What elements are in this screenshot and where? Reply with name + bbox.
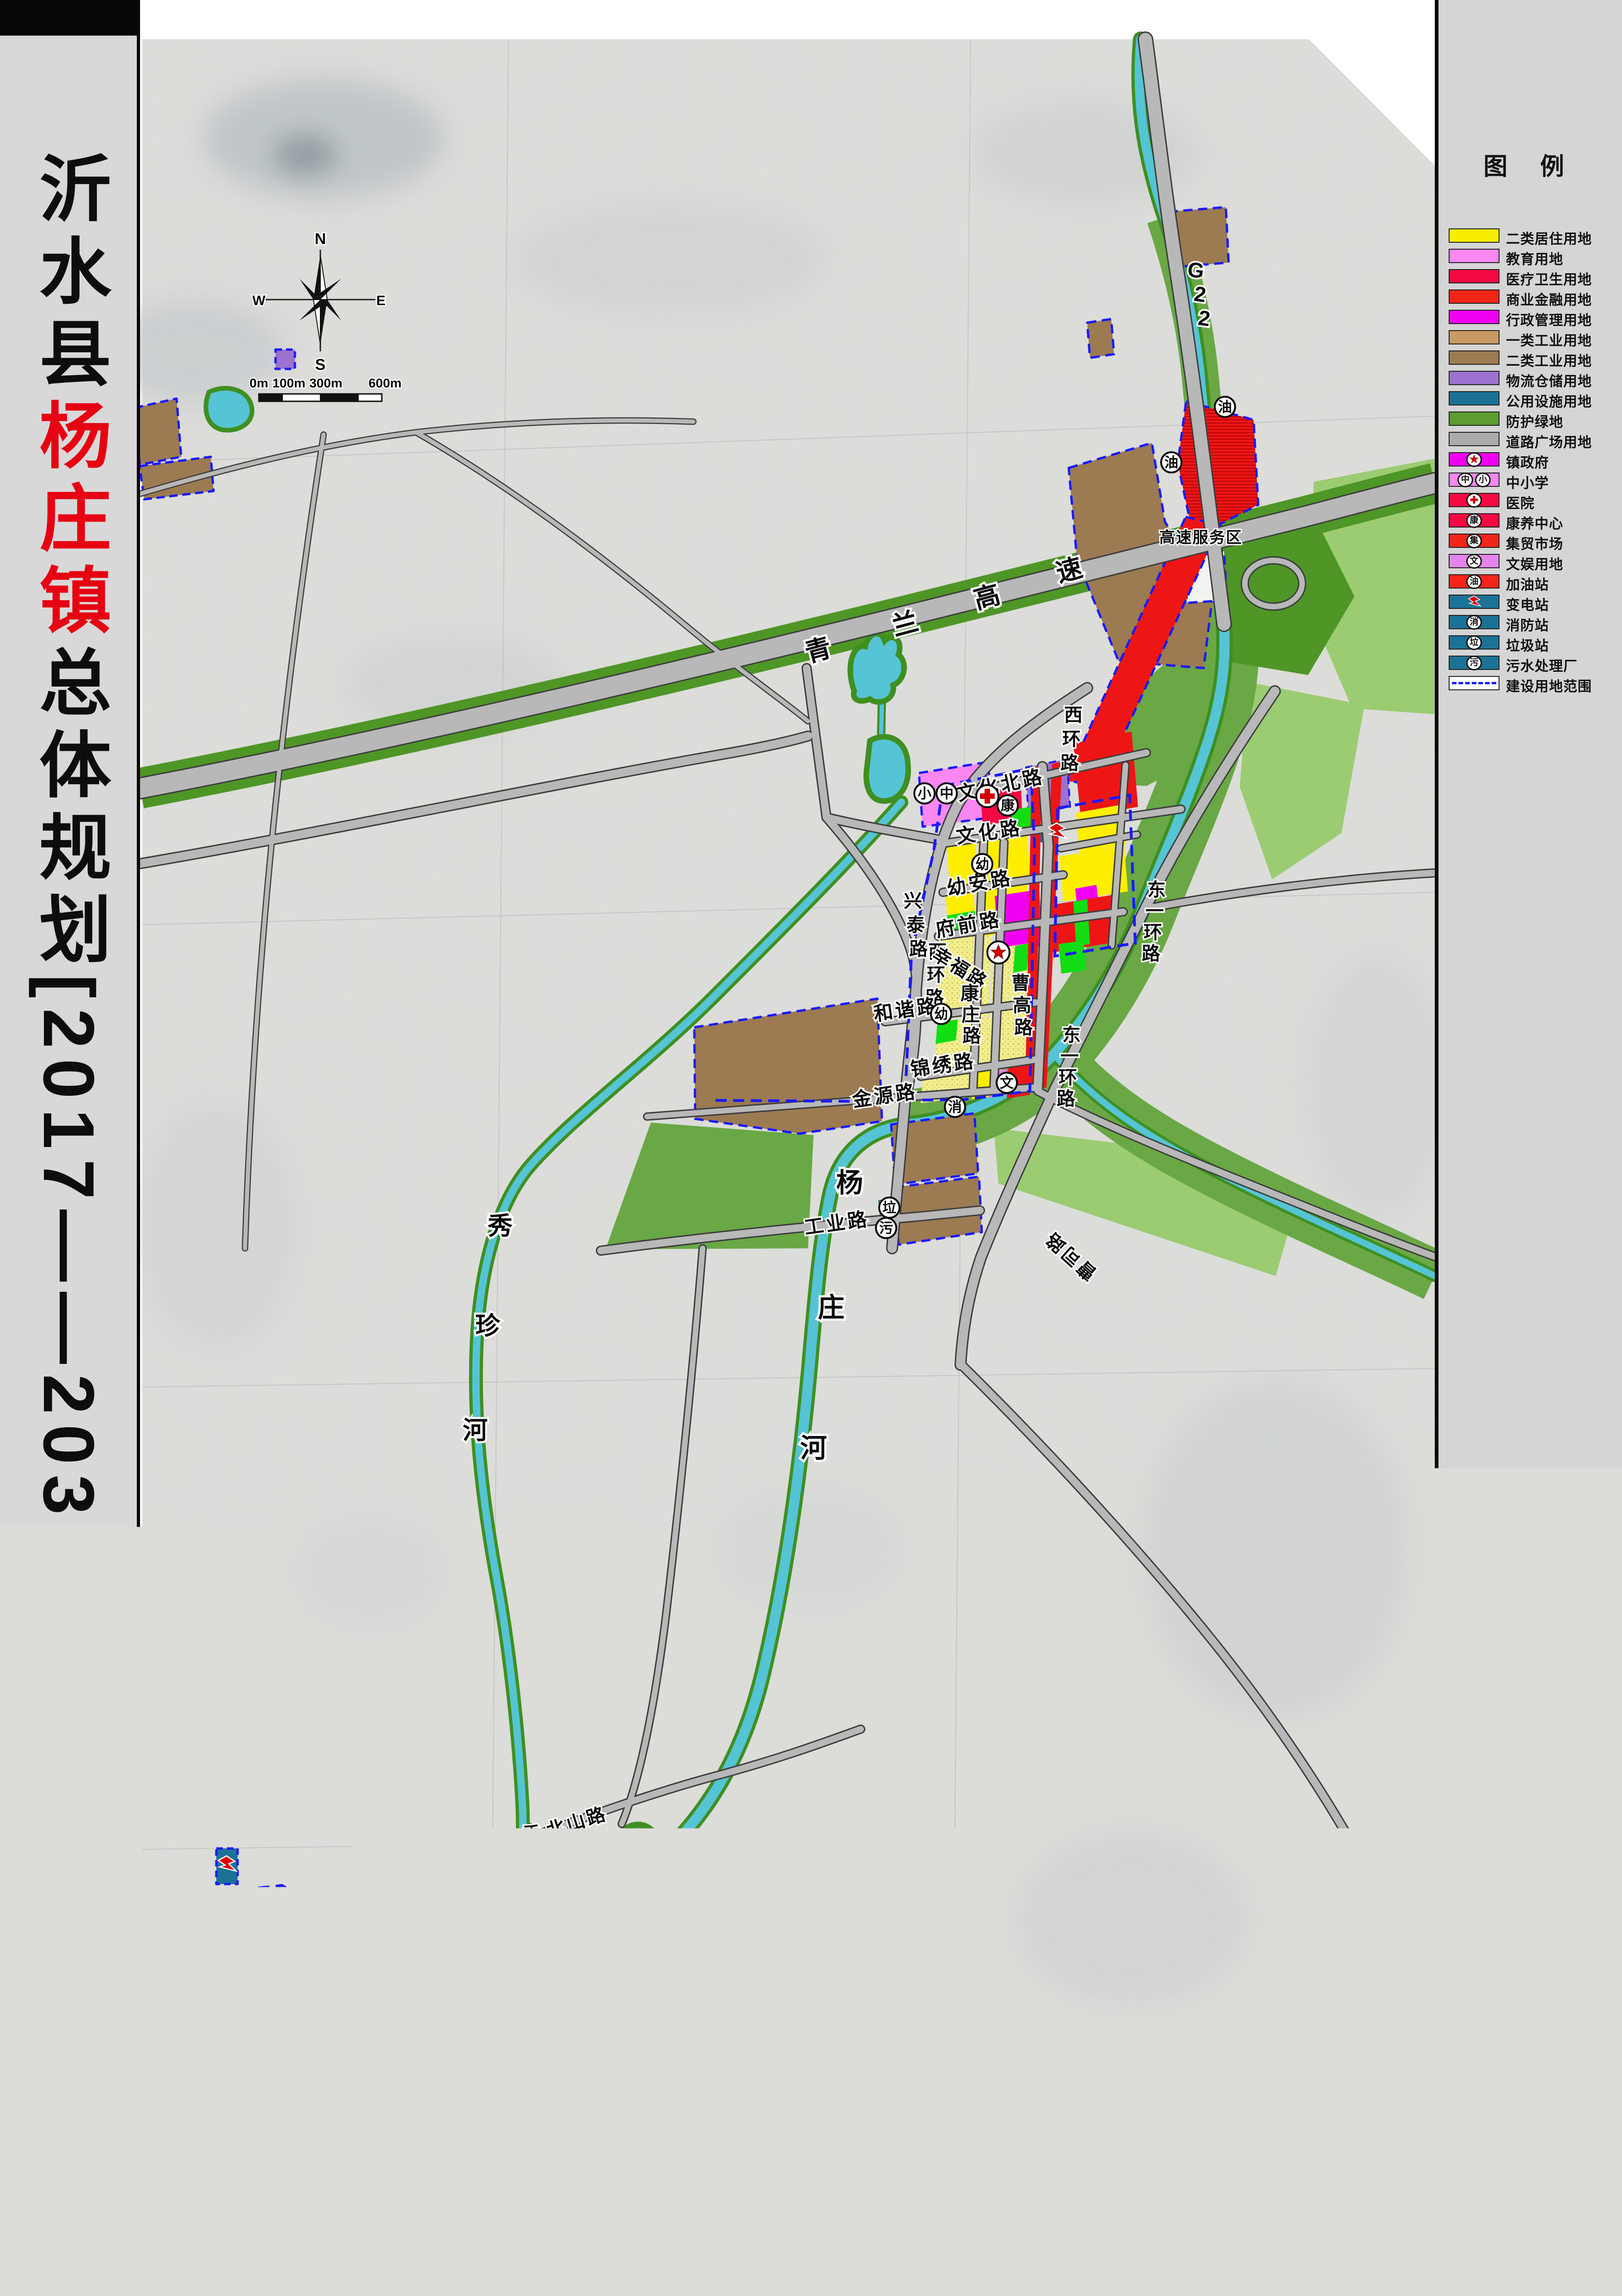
legend-label: 防护绿地 [1506, 411, 1563, 431]
legend-label: 医疗卫生用地 [1506, 268, 1592, 289]
svg-text:中: 中 [940, 786, 954, 802]
map-symbol-中: 中 [936, 783, 957, 804]
legend-item-16: 文文娱用地 [1438, 551, 1622, 571]
river-label: 珍 [475, 1312, 501, 1340]
road-label: 环 [1062, 729, 1081, 749]
legend-item-4: 行政管理用地 [1438, 307, 1622, 327]
svg-text:文: 文 [1000, 1075, 1014, 1091]
map-symbol-消: 消 [945, 1097, 965, 1117]
road-label: 路 [525, 1868, 544, 1889]
svg-text:幼: 幼 [312, 1914, 326, 1929]
map-symbol-幼: 幼 [972, 854, 992, 874]
river-label: 杨 [836, 1168, 863, 1198]
legend-swatch [1449, 269, 1500, 283]
legend-swatch: 消 [1449, 615, 1500, 629]
compass-s-label: S [315, 356, 326, 374]
legend-label: 道路广场用地 [1506, 431, 1592, 451]
road-label: 路 [232, 1962, 251, 1982]
river-label: 河 [463, 1417, 488, 1444]
legend-item-14: 康康养中心 [1438, 510, 1622, 531]
road-label: 钟 [233, 1917, 251, 1938]
legend-label: 变电站 [1506, 594, 1549, 614]
road-label: 东 [1062, 1025, 1081, 1045]
legend-item-21: 污污水处理厂 [1438, 653, 1622, 673]
map-symbol-集: 集 [481, 1969, 501, 1989]
river-label: 秀 [487, 1212, 513, 1240]
government-star-icon [987, 941, 1010, 964]
title-town: 杨庄镇 [28, 398, 109, 645]
legend-title: 图 例 [1438, 147, 1622, 182]
road-label: 路 [1057, 1089, 1076, 1109]
legend-swatch [1449, 595, 1500, 609]
map-symbol-康: 康 [998, 795, 1018, 816]
legend-label: 建设用地范围 [1506, 675, 1592, 695]
legend-item-22: 建设用地范围 [1438, 673, 1622, 694]
legend-item-8: 公用设施用地 [1438, 388, 1622, 409]
road-label: 东 [1147, 880, 1166, 900]
road-label: 兴 [904, 891, 922, 911]
legend-item-20: 垃垃圾站 [1438, 632, 1622, 653]
scale-label: 0m [250, 376, 268, 390]
map-symbol-文: 文 [997, 1073, 1017, 1093]
legend-glyph-icon: 康 [1466, 513, 1482, 528]
map-symbol-幼: 幼 [309, 1910, 329, 1931]
road-label: 路 [1014, 1018, 1033, 1038]
legend-glyph-icon: 文 [1466, 554, 1482, 569]
road-label: 高速服务区 [1159, 529, 1243, 546]
compass-e-label: E [376, 293, 386, 308]
watermark-icon: ✓ [1606, 2278, 1620, 2291]
hospital-cross-icon: ✚ [1466, 493, 1482, 508]
svg-text:油: 油 [1218, 400, 1232, 415]
road-label: 一 [1060, 1046, 1079, 1067]
legend-swatch: 油 [1449, 574, 1500, 589]
legend-glyph-icon: 消 [1466, 615, 1482, 630]
planning-sheet: { "page": { "title_prefix": "沂水县", "titl… [0, 0, 1622, 2294]
page-title: 沂水县杨庄镇总体规划[2017——2035年] [0, 151, 137, 2294]
legend-swatch: 污 [1449, 656, 1500, 670]
legend-item-19: 消消防站 [1438, 612, 1622, 632]
compass-n-label: N [315, 230, 326, 248]
svg-text:幼: 幼 [975, 857, 989, 872]
map-symbol-小: 小 [340, 1934, 361, 1955]
legend-label: 教育用地 [1506, 248, 1563, 268]
legend-label: 镇政府 [1506, 451, 1549, 472]
boundary-dash-icon [1452, 682, 1496, 684]
legend-item-13: ✚医院 [1438, 490, 1622, 510]
road-label: 康 [961, 983, 979, 1004]
legend-item-1: 教育用地 [1438, 246, 1622, 266]
map-symbol-中: 中 [365, 1941, 386, 1961]
svg-text:小: 小 [918, 786, 931, 802]
road-label: 秀 [522, 1824, 541, 1844]
panel-divider-right [1435, 0, 1438, 2294]
legend-item-5: 一类工业用地 [1438, 327, 1622, 348]
road-label: G [1186, 257, 1206, 283]
legend-glyph-icon: 污 [1466, 656, 1482, 670]
legend-label: 污水处理厂 [1506, 655, 1578, 675]
legend-swatch [1449, 676, 1500, 690]
legend-swatch: ✚ [1449, 493, 1500, 507]
scale-label: 300m [309, 376, 343, 390]
legend-item-9: 防护绿地 [1438, 409, 1622, 429]
legend-item-10: 道路广场用地 [1438, 429, 1622, 449]
road-label: 珍 [524, 1846, 543, 1866]
title-panel: 沂水县杨庄镇总体规划[2017——2035年] [0, 36, 137, 2294]
svg-text:油: 油 [1164, 455, 1178, 471]
legend-swatch [1449, 411, 1500, 426]
legend-item-12: 中小中小学 [1438, 470, 1622, 490]
scale-label: 100m [272, 376, 306, 390]
road-label: 灵 [233, 1940, 251, 1960]
legend-swatch [1449, 310, 1500, 324]
svg-text:污: 污 [879, 1221, 893, 1236]
legend-item-17: 油加油站 [1438, 571, 1622, 592]
title-suffix: 总体规划[2017——2035年] [28, 645, 109, 1692]
legend-swatch: 康 [1449, 513, 1500, 528]
legend-item-2: 医疗卫生用地 [1438, 266, 1622, 287]
river-label: 庄 [818, 1293, 845, 1323]
legend-glyph-icon: 垃 [1466, 635, 1482, 650]
road-label: 路 [909, 939, 928, 959]
legend-swatch: 垃 [1449, 635, 1500, 650]
legend-label: 商业金融用地 [1506, 289, 1592, 309]
page-number: 17 [1541, 2155, 1589, 2199]
svg-text:垃: 垃 [882, 1200, 896, 1216]
legend-label: 二类居住用地 [1506, 227, 1592, 248]
legend-swatch [1449, 249, 1500, 263]
legend-label: 中小学 [1506, 472, 1549, 492]
legend-glyph-icon: 小 [1475, 473, 1491, 487]
svg-text:幼: 幼 [934, 1007, 948, 1022]
legend-glyph-icon: 集 [1466, 534, 1482, 548]
road-label: 路 [1142, 944, 1161, 964]
legend-glyph-icon: 中 [1457, 473, 1473, 487]
legend-swatch [1449, 330, 1500, 344]
title-county: 沂水县 [28, 151, 109, 398]
legend-list: 二类居住用地教育用地医疗卫生用地商业金融用地行政管理用地一类工业用地二类工业用地… [1438, 226, 1622, 694]
legend-label: 文娱用地 [1506, 553, 1563, 573]
map-symbol-油: 油 [1161, 452, 1181, 473]
road-label: 西 [1064, 705, 1083, 725]
road-label: 庄 [961, 1005, 980, 1025]
road-label: 环 [1059, 1068, 1077, 1088]
legend-item-7: 物流仓储用地 [1438, 368, 1622, 388]
svg-text:小: 小 [343, 1938, 357, 1953]
road-label: 高 [1013, 995, 1031, 1016]
svg-text:康: 康 [1001, 798, 1015, 814]
bolt-icon [1466, 595, 1482, 608]
map-area: 青兰高速G22西环路西环路东一环路东一环路文化北路文化路幼安路府前路幸福路康庄路… [140, 0, 1435, 2294]
legend-item-3: 商业金融用地 [1438, 287, 1622, 307]
legend-glyph-icon: 油 [1466, 574, 1482, 589]
legend-swatch [1449, 350, 1500, 365]
road-label: 曹 [1011, 973, 1030, 994]
legend-label: 康养中心 [1506, 512, 1563, 533]
legend-label: 垃圾站 [1506, 634, 1549, 655]
road-label: 路 [962, 1026, 981, 1046]
legend-label: 医院 [1506, 492, 1535, 512]
legend-swatch: 集 [1449, 534, 1500, 548]
legend-item-18: 变电站 [1438, 592, 1622, 612]
legend-swatch [1449, 391, 1500, 405]
government-star-icon: ★ [1466, 452, 1482, 467]
panel-divider-left [137, 0, 140, 2294]
legend-label: 物流仓储用地 [1506, 370, 1592, 390]
legend-item-15: 集集贸市场 [1438, 531, 1622, 551]
road-label: 一 [1145, 901, 1164, 921]
road-label: 路 [1060, 753, 1079, 774]
svg-text:集: 集 [484, 1972, 498, 1987]
compass-w-label: W [252, 293, 266, 308]
legend-label: 集贸市场 [1506, 533, 1563, 553]
sheet-title: 远期规划图 [1537, 1885, 1602, 2130]
legend-swatch: 中小 [1449, 473, 1500, 487]
legend-label: 行政管理用地 [1506, 309, 1592, 329]
legend-label: 公用设施用地 [1506, 390, 1592, 411]
legend-item-0: 二类居住用地 [1438, 226, 1622, 246]
river-label: 河 [800, 1433, 827, 1463]
legend-bottom-bar: ✓ [1438, 2218, 1622, 2294]
map-symbol-垃: 垃 [879, 1197, 900, 1218]
road-label: 泰 [906, 915, 925, 935]
scale-label: 600m [368, 376, 402, 390]
scale-bar [259, 394, 382, 401]
legend-swatch [1449, 432, 1500, 446]
legend-swatch [1449, 289, 1500, 304]
map-symbol-油: 油 [1215, 397, 1235, 417]
planning-map: 青兰高速G22西环路西环路东一环路东一环路文化北路文化路幼安路府前路幸福路康庄路… [140, 0, 1435, 2294]
legend-label: 消防站 [1506, 614, 1549, 634]
legend-swatch [1449, 228, 1500, 243]
map-symbol-小: 小 [914, 783, 935, 804]
hospital-cross-icon [976, 785, 998, 807]
legend-panel: 图 例 二类居住用地教育用地医疗卫生用地商业金融用地行政管理用地一类工业用地二类… [1438, 0, 1622, 2294]
svg-text:消: 消 [948, 1100, 962, 1115]
legend-swatch: 文 [1449, 554, 1500, 568]
map-symbol-幼: 幼 [931, 1004, 951, 1024]
legend-item-11: ★镇政府 [1438, 449, 1622, 470]
legend-item-6: 二类工业用地 [1438, 348, 1622, 368]
road-label: 环 [1144, 922, 1162, 943]
legend-label: 加油站 [1506, 573, 1549, 594]
svg-text:中: 中 [368, 1944, 382, 1959]
legend-label: 二类工业用地 [1506, 350, 1592, 370]
legend-swatch: ★ [1449, 452, 1500, 467]
map-symbol-污: 污 [876, 1218, 896, 1238]
legend-swatch [1449, 371, 1500, 385]
legend-label: 一类工业用地 [1506, 329, 1592, 350]
